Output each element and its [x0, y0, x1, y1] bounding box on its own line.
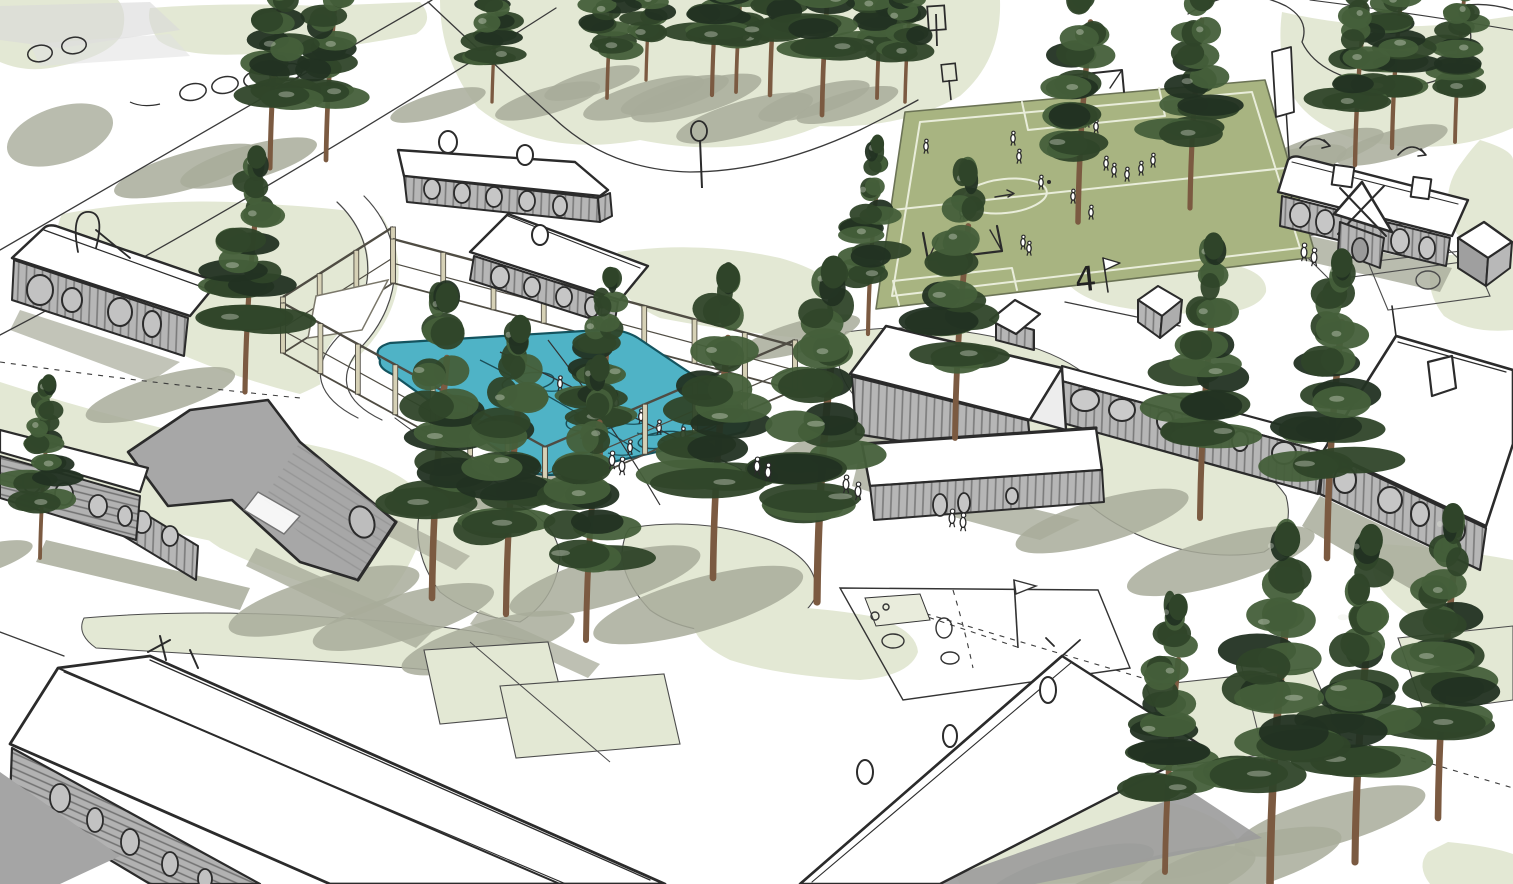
site-plan-illustration: 4 — [0, 0, 1513, 884]
figure-sketch — [949, 509, 955, 527]
site-sketch-canvas: 4 — [0, 0, 1513, 884]
roof-vent — [439, 131, 457, 153]
skylight — [1428, 356, 1456, 396]
building-cabin-a — [398, 131, 612, 222]
field-number-label: 4 — [1073, 259, 1099, 301]
chimney — [1332, 165, 1355, 188]
roof-vent — [532, 225, 548, 245]
ball-dot — [1047, 180, 1051, 184]
figure-sketch — [960, 513, 966, 531]
roof-vent — [517, 145, 533, 165]
figure-sketch — [619, 457, 625, 475]
building-foreground-left — [0, 636, 665, 884]
chimney — [1411, 177, 1432, 199]
building-front-wing — [862, 428, 1104, 520]
